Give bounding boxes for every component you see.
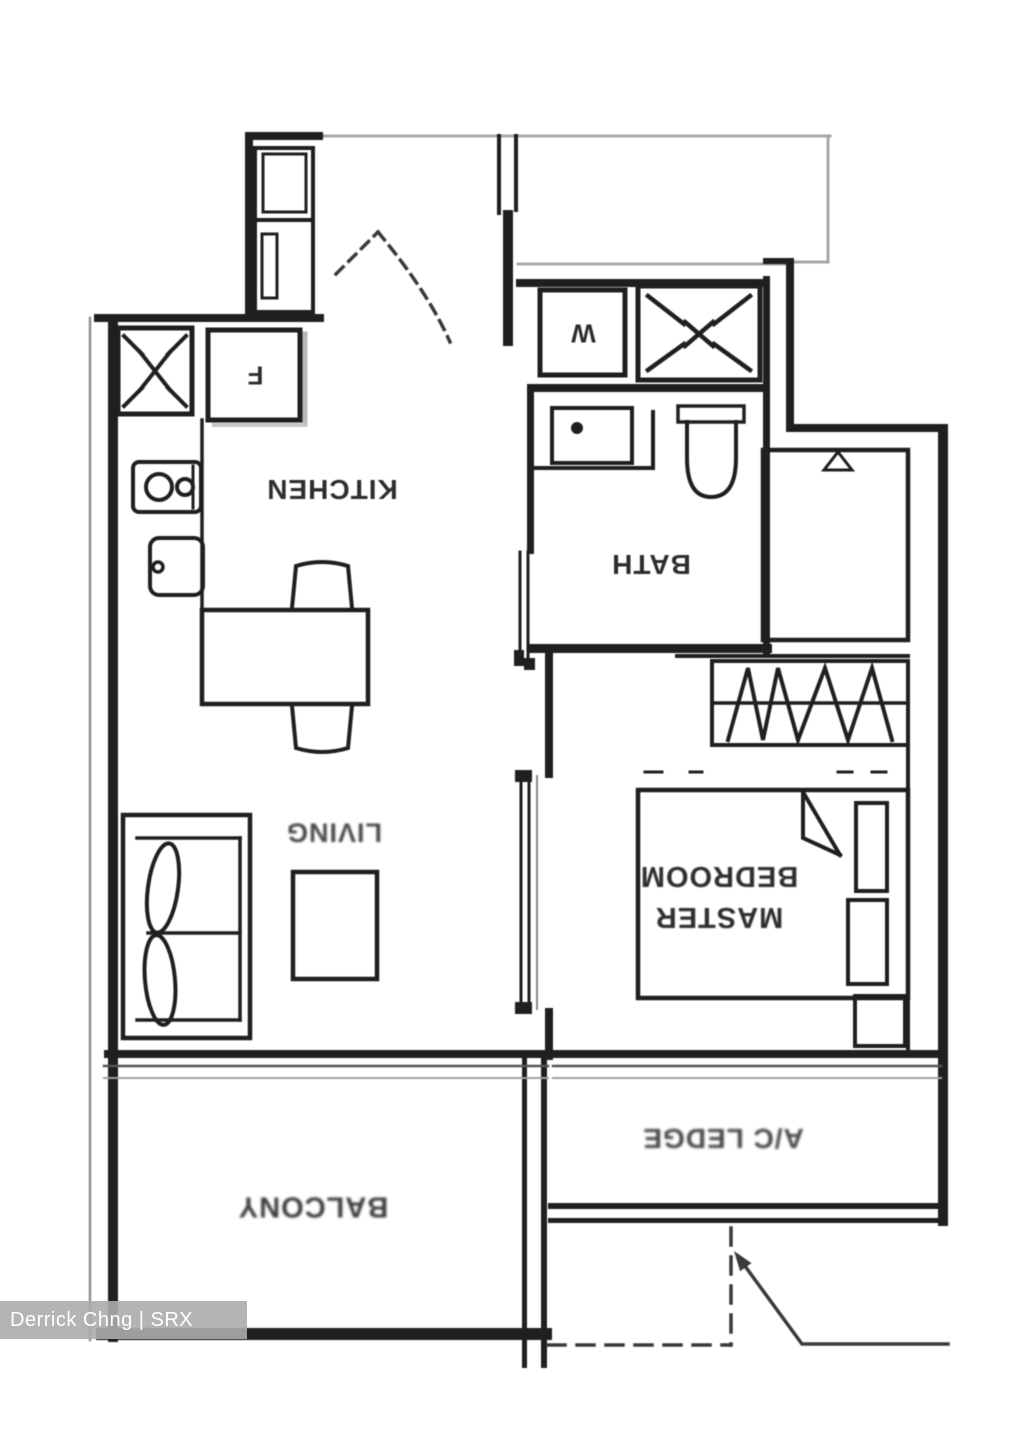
bath-label: BATH: [611, 548, 691, 580]
kitchen-label: KITCHEN: [266, 473, 397, 505]
floorplan-image: KITCHEN BATH LIVING MASTER BEDROOM BALCO…: [0, 0, 1018, 1440]
watermark: Derrick Chng | SRX PROPERTY: [0, 1301, 247, 1339]
bedside-table-icon: [855, 996, 905, 1046]
top-shaft-x-icon: [638, 286, 760, 380]
entrance-door-swing-icon: [336, 232, 450, 342]
dashed-boundary: [548, 1228, 948, 1345]
coffee-table-icon: [293, 872, 377, 979]
bay-window: [763, 450, 908, 640]
kitchen-counter: [133, 420, 203, 612]
master-bedroom-label-line1: MASTER: [640, 896, 798, 937]
master-bedroom-label-line2: BEDROOM: [640, 855, 798, 896]
entrance-closet: [255, 148, 313, 312]
hob-icon: [133, 462, 201, 512]
boundary-lines: [322, 136, 830, 264]
ac-ledge-label: A/C LEDGE: [642, 1122, 803, 1154]
bedroom-sliding-door-icon: [515, 770, 537, 1014]
dining-table: [202, 562, 368, 752]
sofa-icon: [123, 815, 250, 1038]
master-bedroom-label: MASTER BEDROOM: [640, 855, 798, 937]
vanity-icon: [552, 408, 632, 463]
pillow-icon: [848, 900, 887, 984]
sink-icon: [150, 538, 203, 595]
bath-fixtures: [514, 406, 744, 670]
toilet-icon: [678, 406, 744, 422]
living-label: LIVING: [286, 817, 382, 848]
wardrobe-icon: [677, 656, 908, 745]
pillow-icon: [856, 803, 887, 891]
arrow-line: [742, 1262, 948, 1344]
fridge-label: F: [247, 360, 264, 391]
arrowhead-icon: [734, 1251, 752, 1271]
kitchen-shaft-x-icon: [118, 328, 192, 414]
washer-label: W: [570, 318, 596, 349]
floorplan-linework: [0, 0, 1018, 1440]
balcony-label: BALCONY: [238, 1190, 388, 1223]
walls: [94, 132, 948, 1368]
